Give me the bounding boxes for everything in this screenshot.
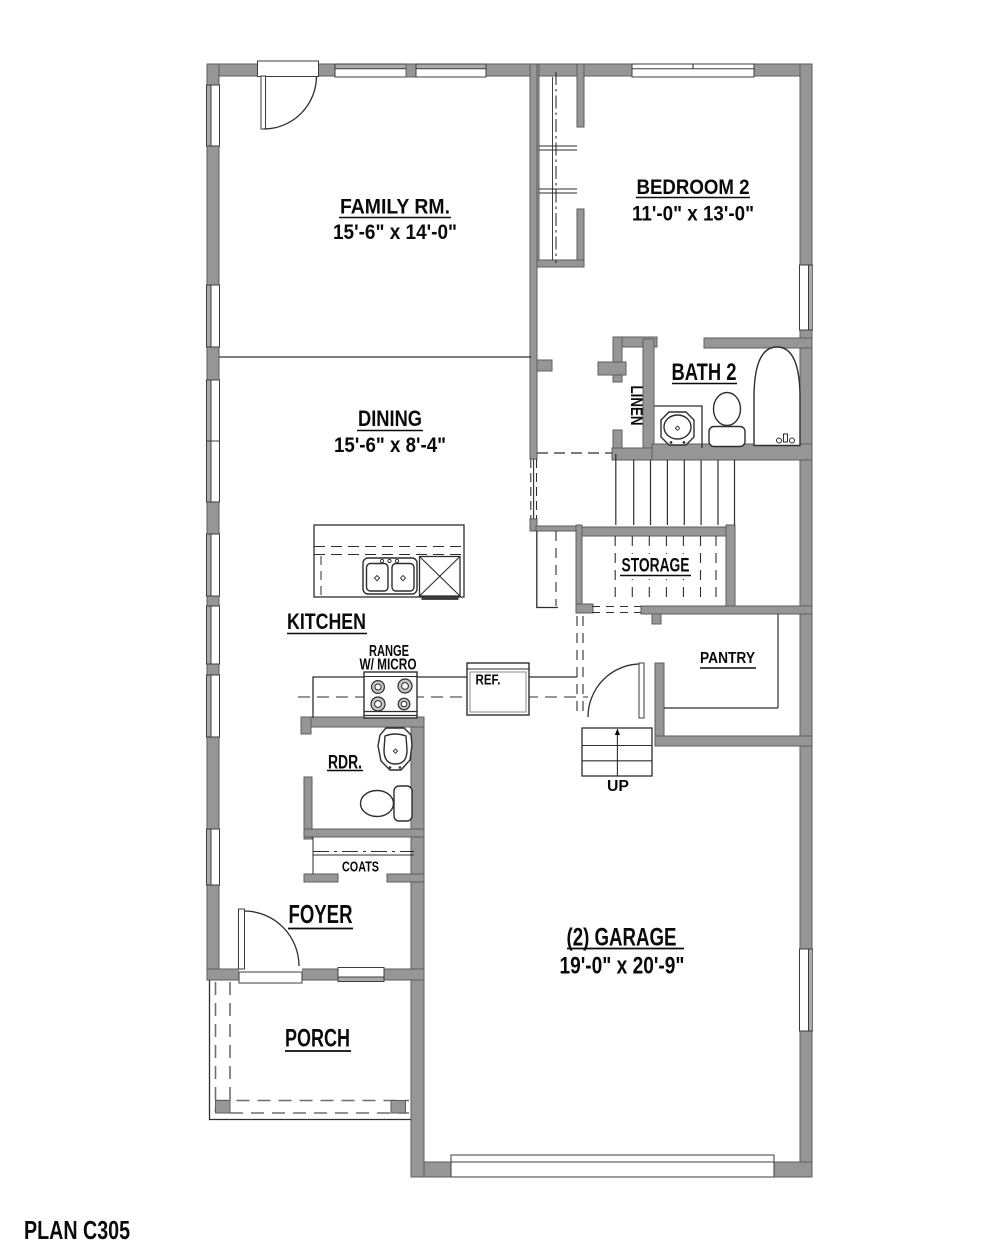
svg-text:(2) GARAGE: (2) GARAGE [567,924,677,952]
svg-text:15'-6" x 8'-4": 15'-6" x 8'-4" [334,434,446,457]
svg-text:PORCH: PORCH [285,1025,350,1053]
svg-text:PANTRY: PANTRY [700,650,755,667]
svg-text:STORAGE: STORAGE [622,556,690,577]
svg-text:KITCHEN: KITCHEN [287,609,366,634]
svg-text:DINING: DINING [358,406,422,431]
svg-text:COATS: COATS [342,860,379,876]
svg-text:W/ MICRO: W/ MICRO [360,657,417,674]
svg-text:PLAN C305: PLAN C305 [24,1215,130,1245]
svg-text:15'-6" x 14'-0": 15'-6" x 14'-0" [333,221,457,244]
svg-text:LINEN: LINEN [627,386,646,426]
svg-text:BATH 2: BATH 2 [672,359,737,386]
svg-text:FAMILY RM.: FAMILY RM. [340,196,450,219]
svg-text:FOYER: FOYER [289,899,353,929]
svg-text:19'-0" x 20'-9": 19'-0" x 20'-9" [560,953,685,980]
svg-text:REF.: REF. [476,672,501,689]
svg-text:BEDROOM 2: BEDROOM 2 [637,176,750,199]
svg-text:UP: UP [607,778,629,795]
svg-text:11'-0" x 13'-0": 11'-0" x 13'-0" [632,203,754,226]
